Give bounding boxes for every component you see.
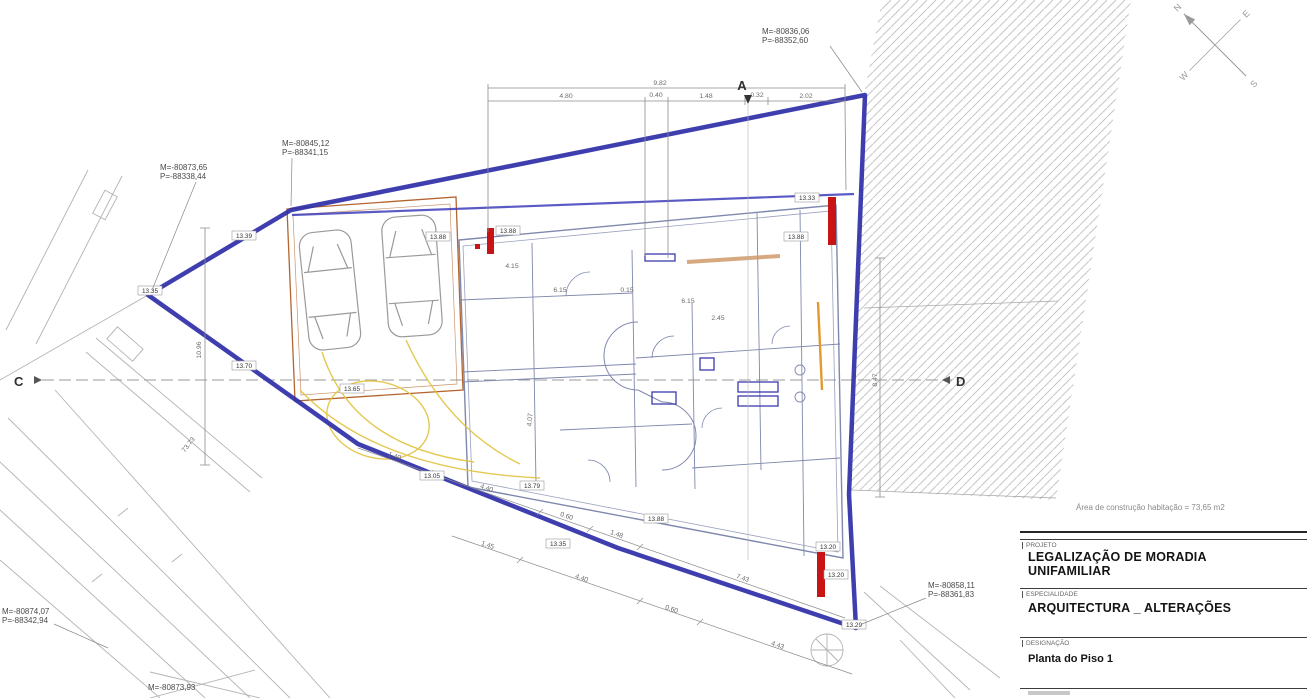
top-dimension-labels: 9.82 4.80 0.40 1.48 0.32 2.02 [559,80,812,100]
dim-seg4: 0.32 [750,92,763,99]
dim-i1: 4.15 [505,263,518,270]
dim-right-v: 8.47 [872,373,879,386]
hatch-region [851,0,1131,500]
svg-text:M=-80836,06: M=-80836,06 [762,27,810,36]
garage-area [287,197,540,478]
drawing-sheet: C D [0,0,1307,698]
project-title-line1: LEGALIZAÇÃO DE MORADIA [1028,550,1207,564]
house-inner-wall [463,211,838,552]
elevation-box: 13.35 [546,539,570,548]
survey-point-far-left: M=-80873,65 P=-88338,44 [152,163,208,290]
svg-text:13.88: 13.88 [430,234,446,241]
elevation-box: 13.33 [795,193,819,202]
section-marker-c: C [14,374,24,389]
project-title-line2: UNIFAMILIAR [1028,564,1111,578]
hatched-area [851,0,1131,500]
dim-i5: 2.45 [711,315,724,322]
survey-point-bottom-left: M=-80874,07 P=-88342,94 [2,607,108,648]
title-block-rule [1020,588,1307,589]
section-marker-a-group: A [737,78,752,560]
turning-paths [300,340,540,478]
elevation-box: 13.88 [426,232,450,241]
north-compass: N S E W [1140,0,1291,122]
drawing-name: Planta do Piso 1 [1028,653,1113,665]
dim-c2c: 0.60 [664,604,679,615]
construction-area-note: Área de construção habitação = 73,65 m2 [1076,503,1225,512]
svg-text:13.88: 13.88 [788,234,804,241]
svg-text:P=-88342,94: P=-88342,94 [2,616,49,625]
garage-outline [287,197,463,401]
survey-point-bottom-right: M=-80858,11 P=-88361,83 [862,581,975,624]
elevation-box: 13.29 [842,620,866,629]
title-block-top-rule [1020,531,1307,533]
dim-c2a: 1.45 [480,540,495,551]
interior-walls [460,210,840,556]
car-1 [298,229,362,352]
svg-text:P=-88352,60: P=-88352,60 [762,36,809,45]
survey-point-upper-left: M=-80845,12 P=-88341,15 [282,139,330,206]
dim-left-v: 10.96 [196,341,203,358]
specialty-field-label: ESPECIALIDADE [1022,591,1078,598]
svg-text:13.88: 13.88 [500,228,516,235]
svg-text:P=-88341,15: P=-88341,15 [282,148,329,157]
dim-seg3: 1.48 [699,93,712,100]
svg-text:M=-80858,11: M=-80858,11 [928,581,975,590]
road-feature-rect [107,327,143,361]
title-block-rule [1020,539,1307,540]
fixture-circles [795,365,805,402]
svg-text:13.33: 13.33 [799,195,815,202]
svg-text:13.39: 13.39 [236,233,252,240]
svg-text:13.79: 13.79 [524,483,540,490]
survey-point-bottom-edge: M=-80873,93 [148,683,196,692]
elevation-box: 13.88 [784,232,808,241]
compass-n: N [1172,2,1184,14]
elevation-box: 13.20 [816,542,840,551]
elevation-box: 13.35 [138,286,162,295]
stair-curves [604,322,696,470]
svg-text:13.70: 13.70 [236,363,252,370]
road-feature-rect [93,190,118,220]
dim-c2b: 4.40 [574,573,589,584]
specialty-value: ARQUITECTURA _ ALTERAÇÕES [1028,601,1231,615]
dim-seg5: 2.02 [799,93,812,100]
dim-i6: 4.07 [526,413,534,427]
title-block-rule [1020,637,1307,638]
compass-s: S [1248,78,1259,89]
designation-field-label: DESIGNAÇÃO [1022,640,1069,647]
section-marker-d: D [956,374,965,389]
elevation-box: 13.39 [232,231,256,240]
elevation-box: 13.20 [824,570,848,579]
svg-text:M=-80874,07: M=-80874,07 [2,607,50,616]
elevation-box: 13.88 [644,514,668,523]
project-field-label: PROJETO [1022,542,1057,549]
survey-point-top-right: M=-80836,06 P=-88352,60 [762,27,862,92]
elevation-box: 13.05 [420,471,444,480]
dim-c2d: 4.43 [770,640,785,651]
dim-i4: 6.15 [681,298,694,305]
section-marker-a: A [737,78,747,93]
elevation-box: 13.79 [520,481,544,490]
elevation-box: 13.70 [232,361,256,370]
survey-labels: M=-80836,06 P=-88352,60 M=-80845,12 P=-8… [2,27,975,692]
svg-text:13.20: 13.20 [820,544,836,551]
new-wall-markers [475,197,836,597]
svg-text:M=-80873,93: M=-80873,93 [148,683,196,692]
interior-dimensions: 4.15 6.15 0.15 6.15 2.45 4.07 [505,263,724,427]
dim-i3: 0.15 [620,287,633,294]
svg-text:M=-80845,12: M=-80845,12 [282,139,330,148]
svg-text:M=-80873,65: M=-80873,65 [160,163,208,172]
compass-e: E [1240,8,1251,19]
svg-text:13.35: 13.35 [550,541,566,548]
svg-text:13.29: 13.29 [846,622,862,629]
title-block-partial-field [1028,691,1070,695]
svg-text:P=-88361,83: P=-88361,83 [928,590,975,599]
elevation-box: 13.88 [496,226,520,235]
elevation-box: 13.65 [340,384,364,393]
svg-text:13.35: 13.35 [142,288,158,295]
compass-w: W [1177,69,1190,82]
title-block-rule [1020,688,1307,689]
svg-text:13.05: 13.05 [424,473,440,480]
svg-text:P=-88338,44: P=-88338,44 [160,172,207,181]
door-arcs [566,272,790,482]
left-vertical-dimension: 10.96 73.73 [181,228,210,465]
svg-text:13.88: 13.88 [648,516,664,523]
dim-i2: 6.15 [553,287,566,294]
svg-text:13.65: 13.65 [344,386,360,393]
svg-text:13.20: 13.20 [828,572,844,579]
dim-seg2: 0.40 [649,92,662,99]
dim-seg1: 4.80 [559,93,572,100]
title-block: PROJETO LEGALIZAÇÃO DE MORADIA UNIFAMILI… [1020,531,1307,698]
dim-total: 9.82 [653,80,666,87]
